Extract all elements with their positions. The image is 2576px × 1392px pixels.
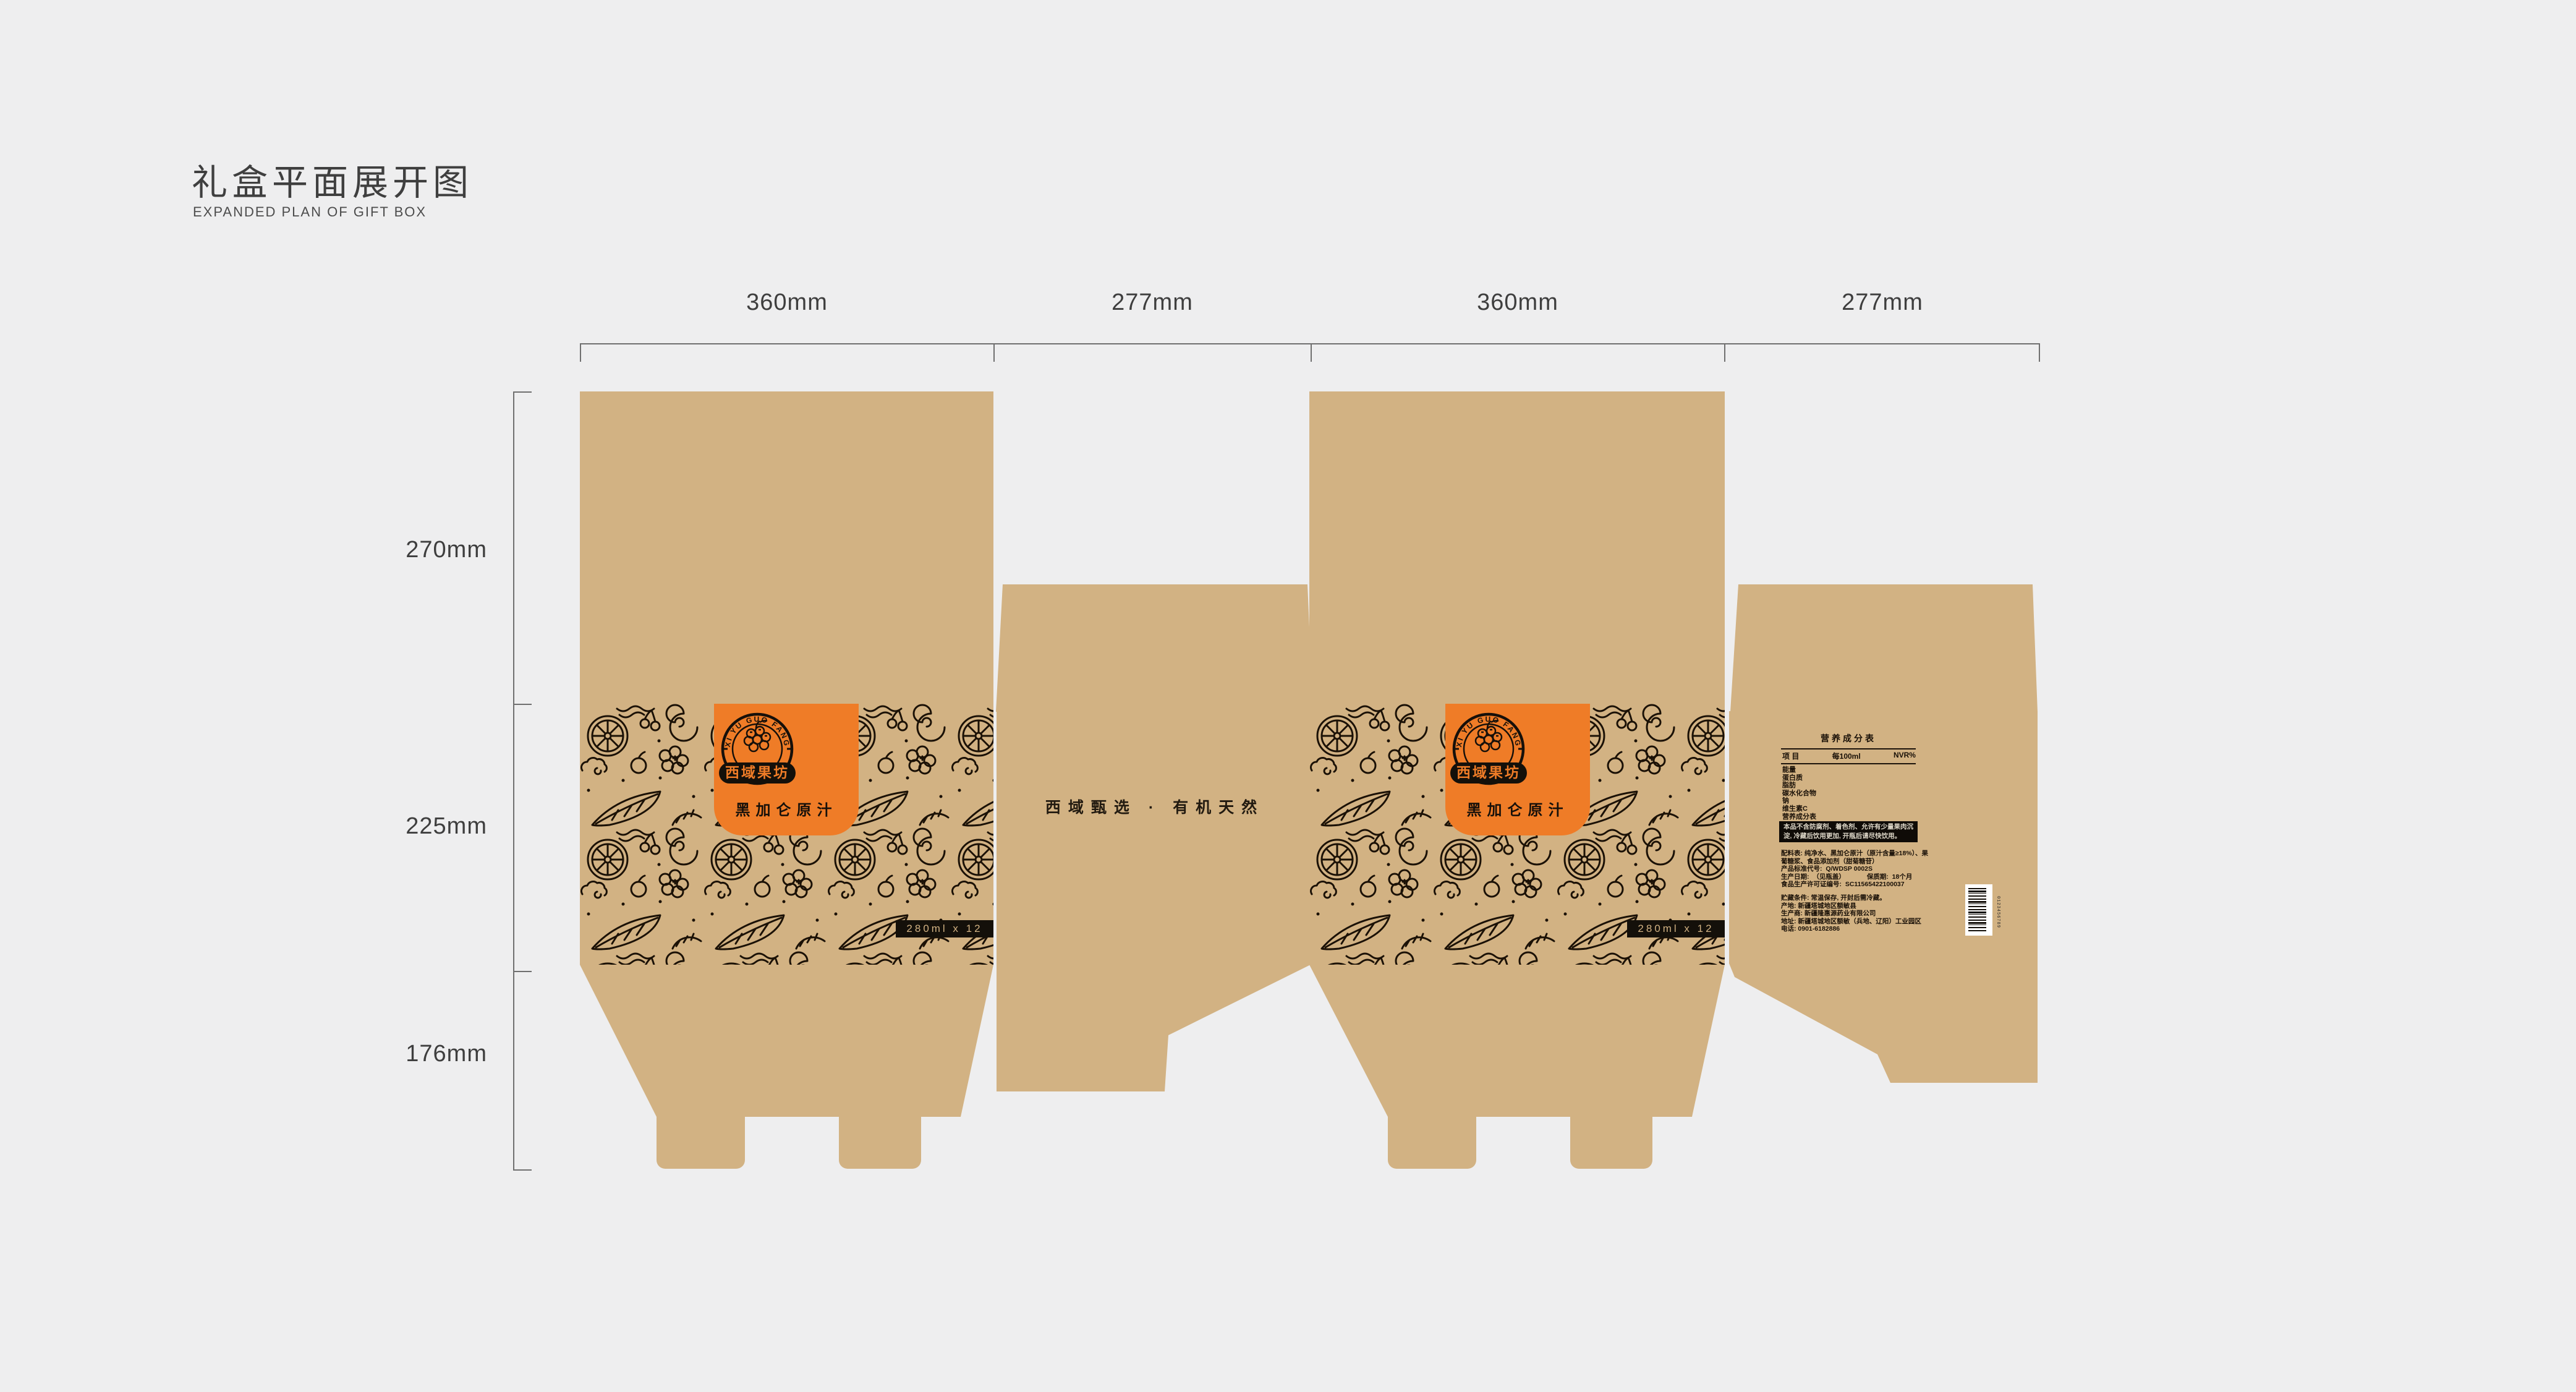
barcode-label: 0123456789 [1965, 884, 1992, 936]
panel-side-a-face: 西域甄选 · 有机天然 [997, 711, 1313, 965]
product-info-block: 配料表: 纯净水、黑加仑原汁（原汁含量≥18%）、果 葡糖浆、食品添加剂（甜菊糖… [1781, 850, 1923, 933]
brand-badge: XI YU GUO FANG 西域果坊 黑加仑原汁 [714, 704, 859, 835]
info-line: 电话: 0901-6182886 [1781, 925, 1923, 933]
panel-side-info-glue-flap [1729, 963, 2038, 1083]
panel-front-b-pattern-band: XI YU GUO FANG 西域果坊 黑加仑原汁 280ml x 12 [1309, 704, 1725, 965]
panel-front-a-foot-tab [657, 1114, 745, 1169]
ruler-tick [514, 1169, 532, 1171]
ruler-tick [514, 971, 532, 972]
warning-line: 淀, 冷藏后饮用更加, 开瓶后请尽快饮用。 [1783, 832, 1913, 841]
panel-side-a-top-flap [996, 584, 1313, 712]
warning-box: 本品不含防腐剂、着色剂、允许有少量果肉沉 淀, 冷藏后饮用更加, 开瓶后请尽快饮… [1779, 821, 1918, 842]
info-line: 产地: 新疆塔城地区额敏县 [1781, 902, 1923, 910]
page-subtitle: EXPANDED PLAN OF GIFT BOX [193, 204, 427, 220]
nutrition-table: 营养成分表 项 目 每100ml NVR% 能量 蛋白质 脂肪 碳水化合物 钠 … [1781, 732, 1916, 824]
logo-name-text: 西域果坊 [725, 764, 789, 780]
brand-badge: XI YU GUO FANG 西域果坊 黑加仑原汁 [1445, 704, 1590, 835]
brand-logo: XI YU GUO FANG 西域果坊 [714, 704, 801, 796]
info-line: 生产商: 新疆隆惠源药业有限公司 [1781, 910, 1923, 918]
ruler-tick [514, 391, 532, 393]
col-item: 项 目 [1782, 751, 1799, 761]
nutrition-row: 能量 [1781, 766, 1916, 774]
col-per100ml: 每100ml [1832, 751, 1861, 761]
panel-side-info-top-flap [1730, 584, 2038, 712]
left-dimension-ruler [513, 391, 532, 1171]
nutrition-row: 营养成分表 [1781, 813, 1916, 821]
gift-box-dieline-sheet: 礼盒平面展开图 EXPANDED PLAN OF GIFT BOX 360mm … [0, 0, 2576, 1392]
info-line: 食品生产许可证编号: SC11565422100037 [1781, 881, 1923, 889]
info-gap [1781, 889, 1923, 894]
nutrition-row: 维生素C [1781, 805, 1916, 813]
panel-side-a-glue-flap [997, 963, 1313, 1091]
dim-top-2: 277mm [1090, 289, 1214, 316]
product-name: 黑加仑原汁 [1445, 798, 1590, 819]
nutrition-row: 蛋白质 [1781, 774, 1916, 782]
panel-front-a-bottom-flap [580, 965, 993, 1117]
ruler-tick [1724, 344, 1725, 362]
dim-top-4: 277mm [1821, 289, 1944, 316]
panel-front-a-foot-tab [839, 1114, 921, 1169]
page-title: 礼盒平面展开图 [192, 153, 473, 205]
top-dimension-ruler [580, 343, 2040, 362]
ruler-tick [993, 344, 995, 362]
ruler-tick [1311, 344, 1312, 362]
ruler-tick [2039, 344, 2040, 362]
barcode-bars [1968, 888, 1986, 932]
panel-front-b-bottom-flap [1309, 965, 1725, 1117]
panel-front-b-foot-tab [1388, 1114, 1476, 1169]
dim-left-2: 225mm [370, 813, 487, 840]
nutrition-row: 钠 [1781, 797, 1916, 805]
nutrition-row: 碳水化合物 [1781, 790, 1916, 798]
pack-size-bar: 280ml x 12 [1627, 920, 1725, 937]
panel-front-b-lid [1309, 391, 1725, 705]
panel-front-a-lid [580, 391, 993, 705]
product-name: 黑加仑原汁 [714, 798, 859, 819]
dim-top-3: 360mm [1456, 289, 1579, 316]
nutrition-row: 脂肪 [1781, 782, 1916, 790]
barcode-digits: 0123456789 [1996, 896, 2000, 928]
info-line: 生产日期: （见瓶盖） 保质期: 18个月 [1781, 873, 1923, 881]
pack-size-bar: 280ml x 12 [896, 920, 993, 937]
ruler-tick [580, 344, 581, 362]
info-line: 配料表: 纯净水、黑加仑原汁（原汁含量≥18%）、果 [1781, 850, 1923, 858]
ruler-tick [514, 704, 532, 705]
nutrition-header-row: 项 目 每100ml NVR% [1781, 749, 1916, 763]
dim-top-1: 360mm [725, 289, 849, 316]
info-line: 葡糖浆、食品添加剂（甜菊糖苷） [1781, 858, 1923, 866]
info-line: 产品标准代号: Q/WDSP 0002S [1781, 865, 1923, 873]
panel-front-a-pattern-band: XI YU GUO FANG 西域果坊 黑加仑原汁 280ml x 12 [580, 704, 993, 965]
col-nvr: NVR% [1894, 751, 1916, 761]
dim-left-3: 176mm [370, 1041, 487, 1067]
info-line: 地址: 新疆塔城地区额敏（兵地、辽阳）工业园区 [1781, 918, 1923, 926]
brand-slogan: 西域甄选 · 有机天然 [997, 795, 1313, 818]
panel-front-b-foot-tab [1570, 1114, 1652, 1169]
dim-left-1: 270mm [370, 537, 487, 563]
logo-name-text: 西域果坊 [1456, 764, 1521, 780]
brand-logo: XI YU GUO FANG 西域果坊 [1445, 704, 1532, 796]
warning-line: 本品不含防腐剂、着色剂、允许有少量果肉沉 [1783, 822, 1913, 832]
info-line: 贮藏条件: 常温保存, 开封后需冷藏。 [1781, 894, 1923, 902]
nutrition-title: 营养成分表 [1781, 732, 1916, 745]
